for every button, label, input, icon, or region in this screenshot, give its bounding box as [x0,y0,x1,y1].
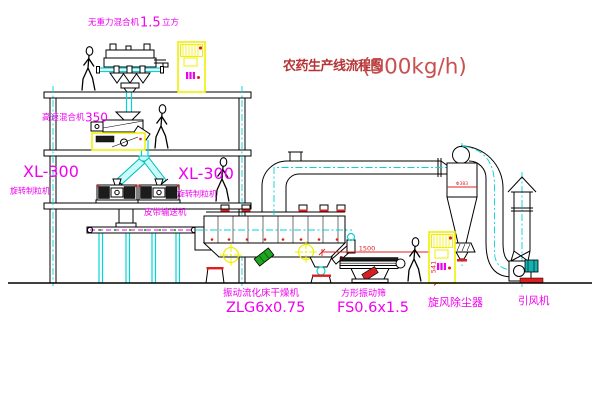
flow-diagram-canvas: 农药生产线流程图 (500kg/h) 无重力混合机 1.5 立方 高速混合机 3… [0,0,600,403]
cyclone-label: 旋风除尘器 [428,295,483,309]
granulator-left-machine [96,179,138,203]
sieve-name-label: 方形振动筛 [341,287,386,299]
person-figure [408,238,421,282]
control-cabinet-bottom [429,232,455,283]
granulator-left-name: 旋转制粒机 [10,186,50,196]
fan-label: 引风机 [518,294,550,307]
belt-conveyor-label: 皮带输送机 [144,207,187,218]
fluid-bed-dryer-machine [195,205,352,283]
high-speed-mixer-value: 350 [85,111,108,125]
gravity-mixer-unit: 立方 [162,17,179,28]
granulator-mid-name: 旋转制粒机 [177,189,217,199]
sieve-length-dim: 1500 [359,245,376,253]
exhaust-duct [262,152,448,216]
dryer-model-label: ZLG6x0.75 [226,300,305,316]
person-figure [82,47,95,91]
belt-conveyor-machine [87,227,197,283]
granulator-right-machine [138,179,180,203]
control-cabinet-top [178,42,205,92]
induced-draft-fan [509,260,543,283]
drop-duct [116,209,136,227]
sieve-height-dim: 541 [430,261,438,273]
gravity-mixer-machine [97,44,169,112]
sieve-model-label: FS0.6x1.5 [337,300,409,316]
cyclone-dim-note: Φ383 [456,181,468,187]
granulator-mid-model: XL-300 [178,164,234,183]
gravity-mixer-value: 1.5 [140,16,161,31]
granulator-left-model: XL-300 [23,162,79,181]
dryer-name-label: 振动流化床干燥机 [223,287,300,299]
high-speed-mixer-label: 高速混合机 [42,112,85,123]
person-figure [155,105,168,149]
gravity-mixer-label: 无重力混合机 [88,17,140,28]
title-capacity: (500kg/h) [362,55,467,80]
